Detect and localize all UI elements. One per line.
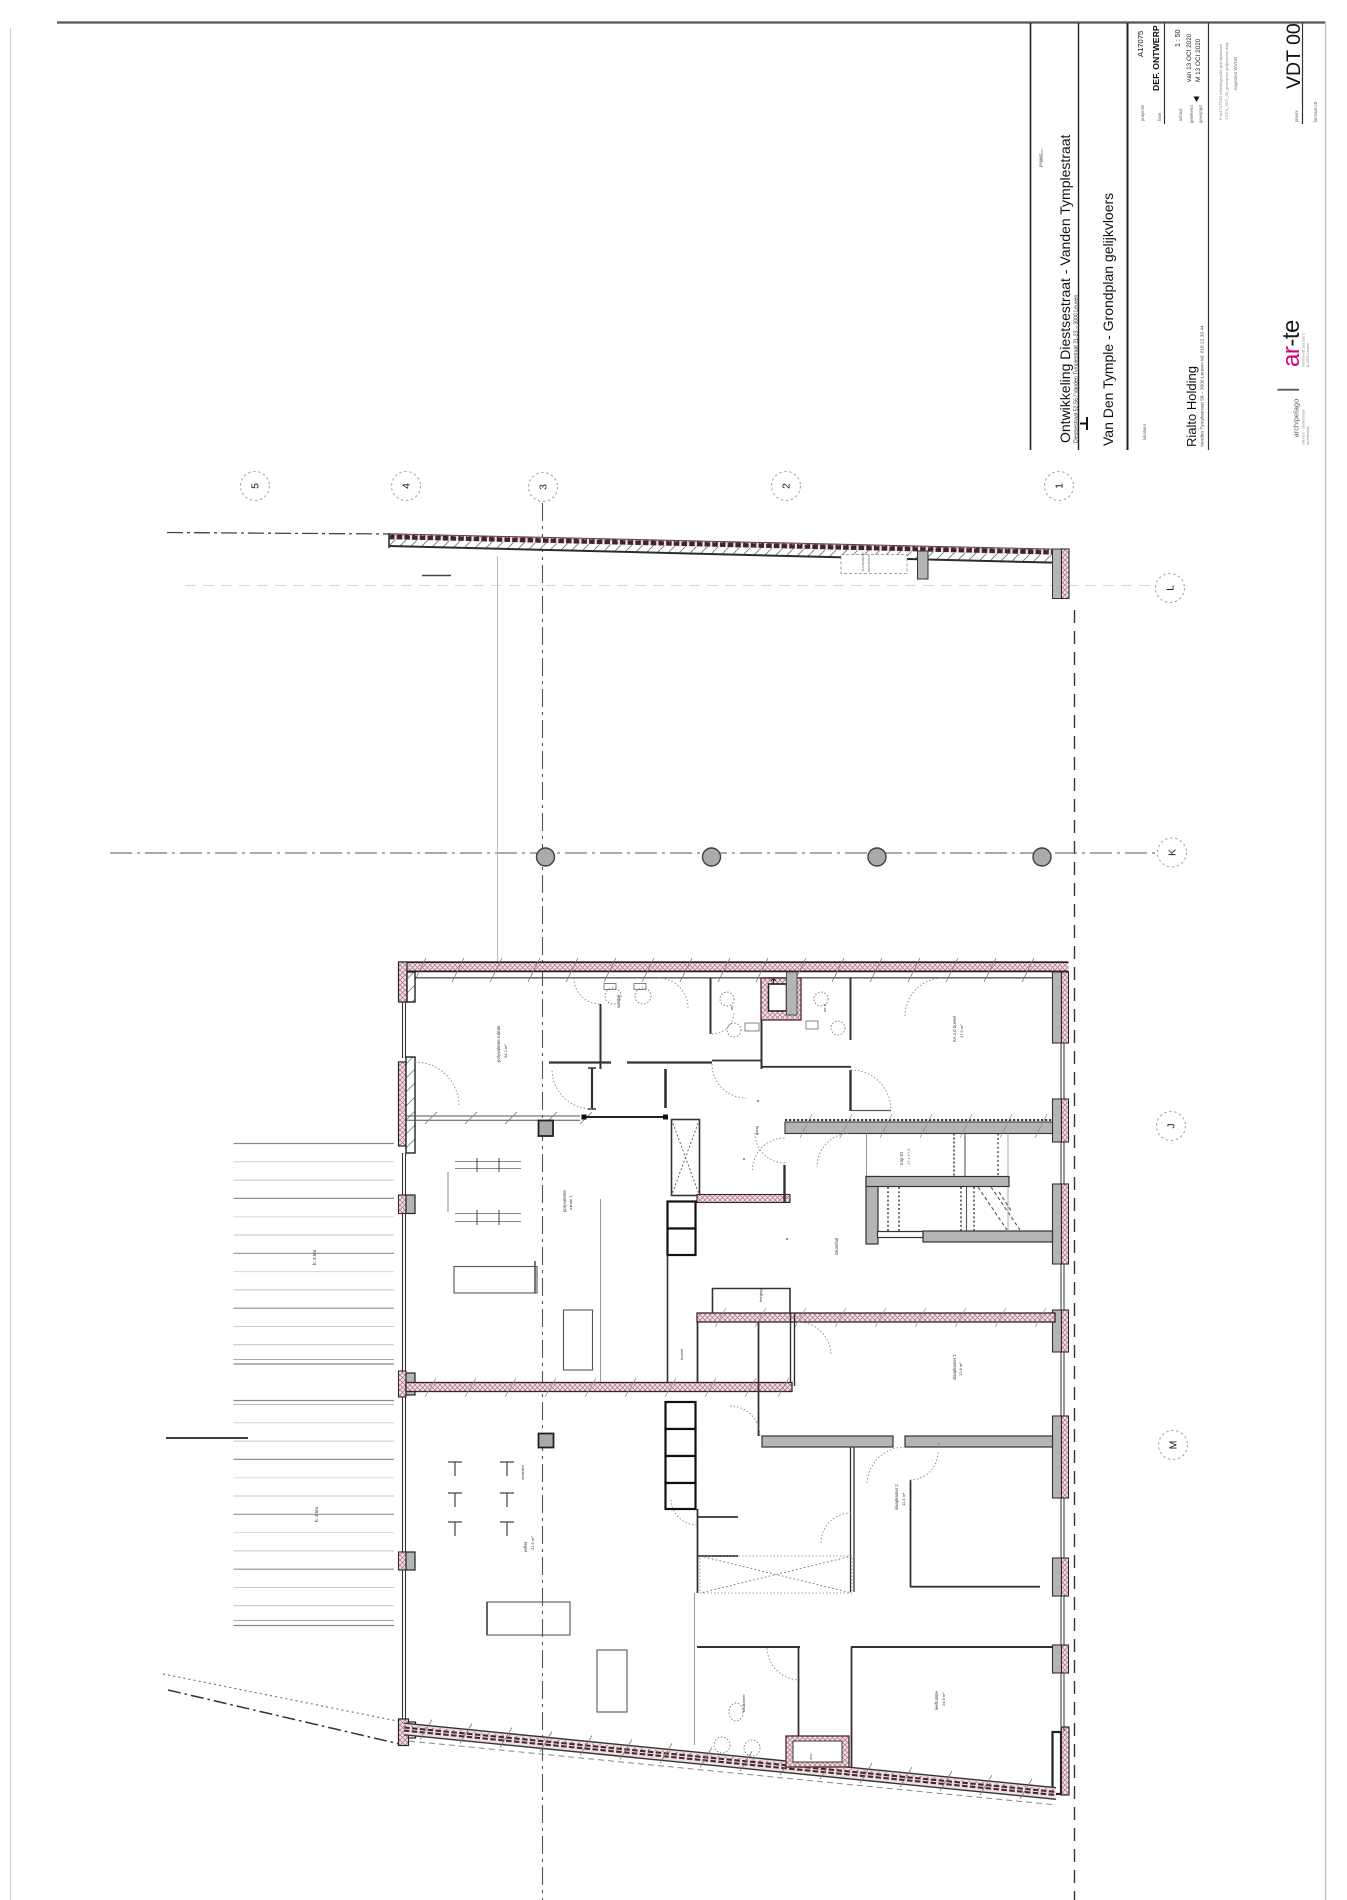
svg-text:leefruimte: leefruimte bbox=[934, 1691, 939, 1710]
svg-text:vestiaire: vestiaire bbox=[520, 1464, 525, 1480]
svg-text:wc d: wc d bbox=[823, 1004, 827, 1012]
svg-text:11.4 m²: 11.4 m² bbox=[901, 1492, 906, 1506]
svg-text:nagezien WVDB: nagezien WVDB bbox=[1233, 57, 1238, 90]
svg-text:interieur · stedenbouw: interieur · stedenbouw bbox=[1302, 409, 1306, 445]
svg-text:bureel: bureel bbox=[679, 1349, 684, 1360]
svg-text:h: 3.5m: h: 3.5m bbox=[312, 1250, 317, 1265]
svg-text:polyvalente ruimte: polyvalente ruimte bbox=[496, 1025, 501, 1062]
svg-text:Tiensevest 132 bus 1: Tiensevest 132 bus 1 bbox=[1302, 333, 1306, 367]
svg-text:wc: wc bbox=[730, 1005, 734, 1010]
svg-text:keermuur: keermuur bbox=[866, 554, 871, 572]
svg-text:B-3000 Leuven: B-3000 Leuven bbox=[1306, 343, 1310, 367]
svg-text:17075_VDT_00_grondplan gelijkv: 17075_VDT_00_grondplan gelijkvloers.dwg bbox=[1224, 43, 1229, 120]
svg-text:inkomhal: inkomhal bbox=[834, 1238, 839, 1255]
svg-text:archipelago: archipelago bbox=[1292, 399, 1301, 438]
svg-text:lokatienr: lokatienr bbox=[1142, 423, 1147, 440]
svg-text:17 x 17.6: 17 x 17.6 bbox=[906, 1148, 911, 1165]
svg-text:K: K bbox=[1167, 849, 1179, 856]
svg-text:Ontwikkeling Diestsestraat - V: Ontwikkeling Diestsestraat - Vanden Tymp… bbox=[1057, 134, 1073, 443]
svg-text:getekend: getekend bbox=[1189, 105, 1194, 123]
svg-text:berging: berging bbox=[758, 1289, 763, 1302]
svg-text:schaal: schaal bbox=[1178, 109, 1183, 121]
svg-text:J: J bbox=[1166, 1123, 1178, 1128]
svg-text:A17075: A17075 bbox=[1136, 31, 1145, 57]
svg-text:ruimte 2: ruimte 2 bbox=[568, 1195, 573, 1210]
svg-text:polyvalente: polyvalente bbox=[562, 1190, 567, 1212]
svg-text:bestaande: bestaande bbox=[860, 552, 865, 571]
svg-text:M: M bbox=[1168, 1441, 1180, 1450]
svg-text:VDT 00: VDT 00 bbox=[1283, 23, 1305, 89]
svg-text:architectuur: architectuur bbox=[1306, 425, 1310, 445]
svg-text:L: L bbox=[1165, 585, 1177, 591]
svg-text:Rialto Holding: Rialto Holding bbox=[1184, 366, 1199, 447]
svg-text:31.6 m²: 31.6 m² bbox=[530, 1536, 535, 1550]
svg-text:1: 1 bbox=[1054, 483, 1066, 489]
svg-text:Van Den Tymple - Grondplan gel: Van Den Tymple - Grondplan gelijkvloers bbox=[1100, 193, 1116, 446]
svg-text:Diestsestraat 52-56 / Vanden T: Diestsestraat 52-56 / Vanden Tymplestraa… bbox=[1074, 295, 1080, 443]
svg-text:DEF. ONTWERP: DEF. ONTWERP bbox=[1151, 25, 1161, 91]
svg-text:1 : 50: 1 : 50 bbox=[1175, 29, 1182, 47]
svg-text:24.6 m²: 24.6 m² bbox=[941, 1692, 946, 1706]
svg-text:projectnr: projectnr bbox=[1140, 104, 1145, 121]
svg-text:sanitair: sanitair bbox=[616, 994, 621, 1008]
svg-text:12.8 m²: 12.8 m² bbox=[958, 1362, 963, 1376]
svg-text:gewijzigd: gewijzigd bbox=[1198, 105, 1203, 123]
svg-text:17.9 m²: 17.9 m² bbox=[959, 1024, 964, 1038]
svg-text:64.2 m²: 64.2 m² bbox=[503, 1044, 508, 1058]
svg-text:KA 1.0 bureel: KA 1.0 bureel bbox=[952, 1016, 957, 1042]
svg-text:4: 4 bbox=[401, 483, 413, 489]
svg-text:badkamer: badkamer bbox=[741, 1694, 746, 1712]
svg-text:h: 3.5m: h: 3.5m bbox=[314, 1507, 319, 1522]
svg-text:fase: fase bbox=[1157, 112, 1162, 121]
svg-text:slaapkamer 2: slaapkamer 2 bbox=[894, 1484, 899, 1510]
svg-text:formaat A0: formaat A0 bbox=[1313, 101, 1318, 122]
svg-text:Vanden Tymplestraat 58 – 3000: Vanden Tymplestraat 58 – 3000 Leuven tel… bbox=[1200, 325, 1206, 447]
svg-text:gang: gang bbox=[754, 1126, 759, 1135]
svg-text:refter: refter bbox=[523, 1541, 528, 1552]
svg-text:5: 5 bbox=[250, 483, 262, 489]
svg-text:M 13 OCI 2020: M 13 OCI 2020 bbox=[1195, 38, 1202, 82]
svg-text:slaapkamer 1: slaapkamer 1 bbox=[952, 1354, 957, 1380]
svg-text:van 13 OCI 2020: van 13 OCI 2020 bbox=[1186, 33, 1193, 82]
svg-text:dou: dou bbox=[809, 1754, 813, 1760]
svg-text:P:\A17075\02 tekeningen\00 gro: P:\A17075\02 tekeningen\00 grondplannen bbox=[1218, 44, 1223, 120]
svg-text:2: 2 bbox=[781, 483, 793, 489]
svg-text:trap 01: trap 01 bbox=[899, 1151, 904, 1165]
svg-text:bouwen: bouwen bbox=[1040, 149, 1044, 162]
svg-text:3: 3 bbox=[538, 484, 550, 490]
svg-text:plannr: plannr bbox=[1294, 109, 1299, 122]
